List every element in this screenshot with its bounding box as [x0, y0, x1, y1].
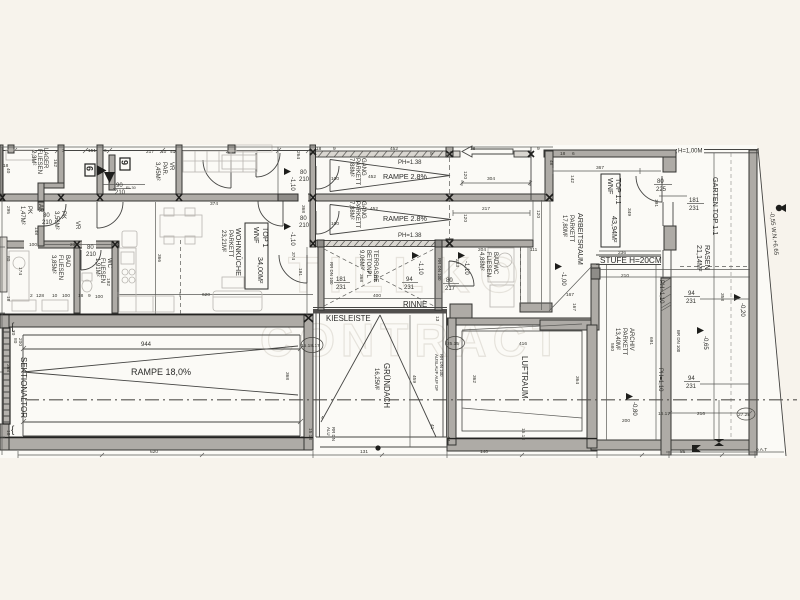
svg-text:-1,10: -1,10 [289, 177, 295, 191]
svg-text:151: 151 [88, 148, 96, 154]
svg-text:100: 100 [62, 293, 70, 299]
svg-text:80: 80 [300, 216, 307, 222]
svg-text:H=1,00M: H=1,00M [678, 149, 703, 155]
svg-text:PAR.: PAR. [161, 162, 167, 176]
svg-text:RR DN 100: RR DN 100 [437, 258, 442, 281]
svg-text:204: 204 [478, 247, 486, 253]
svg-text:3,45M²: 3,45M² [154, 162, 160, 181]
svg-text:225: 225 [656, 187, 667, 193]
svg-text:48: 48 [548, 160, 554, 166]
svg-text:120: 120 [462, 214, 468, 222]
svg-text:100: 100 [29, 242, 37, 248]
svg-text:o A.T: o A.T [756, 447, 767, 453]
svg-text:113: 113 [372, 274, 378, 282]
svg-text:620: 620 [150, 449, 158, 455]
svg-text:BR DN 100: BR DN 100 [676, 330, 681, 353]
svg-text:3,85M²: 3,85M² [50, 255, 56, 274]
svg-text:4,88M²: 4,88M² [478, 252, 484, 271]
svg-text:368: 368 [284, 372, 290, 380]
svg-text:200: 200 [17, 338, 23, 346]
svg-text:44: 44 [445, 436, 451, 442]
svg-text:80: 80 [657, 179, 664, 185]
svg-text:181: 181 [336, 277, 347, 283]
svg-text:STUFE H=20CM: STUFE H=20CM [600, 256, 662, 265]
svg-text:94: 94 [688, 376, 695, 382]
svg-text:364: 364 [574, 376, 580, 384]
svg-text:PH=1,10: PH=1,10 [658, 280, 664, 304]
svg-text:580: 580 [609, 343, 615, 351]
svg-text:80: 80 [43, 213, 50, 219]
svg-text:210: 210 [299, 177, 310, 183]
svg-text:-0,80: -0,80 [631, 402, 637, 416]
svg-text:RR DN 100: RR DN 100 [329, 262, 334, 285]
svg-text:9,06M²: 9,06M² [358, 250, 364, 269]
svg-text:94: 94 [688, 291, 695, 297]
svg-text:41: 41 [429, 424, 435, 430]
svg-text:FLIESEN: FLIESEN [485, 252, 491, 277]
svg-text:16,25M²: 16,25M² [373, 368, 379, 390]
svg-text:1,47M²: 1,47M² [19, 206, 25, 225]
svg-text:PARKETT: PARKETT [227, 230, 233, 258]
svg-text:94: 94 [406, 277, 413, 283]
svg-text:131: 131 [360, 449, 368, 455]
svg-text:RAMPE 18,0%: RAMPE 18,0% [131, 367, 191, 377]
svg-text:FLIESEN: FLIESEN [57, 255, 63, 280]
svg-text:231: 231 [336, 285, 347, 291]
svg-text:80: 80 [446, 278, 453, 284]
svg-text:120: 120 [535, 210, 541, 218]
svg-text:KIESLEISTE: KIESLEISTE [326, 314, 371, 323]
svg-text:100: 100 [95, 294, 103, 300]
svg-text:15.18: 15.18 [520, 428, 526, 440]
svg-text:80: 80 [87, 245, 94, 251]
svg-text:217: 217 [482, 206, 490, 212]
svg-text:25.15: 25.15 [447, 341, 459, 347]
svg-text:6: 6 [572, 151, 575, 157]
svg-text:691: 691 [648, 337, 654, 345]
svg-text:10: 10 [52, 293, 58, 299]
svg-text:23,21M²: 23,21M² [220, 230, 226, 252]
svg-text:216: 216 [697, 411, 705, 417]
svg-text:362: 362 [471, 375, 477, 383]
svg-text:ARCHIV: ARCHIV [628, 328, 634, 351]
svg-text:231: 231 [404, 285, 415, 291]
svg-text:233: 233 [454, 259, 460, 267]
svg-text:2: 2 [30, 293, 33, 299]
svg-text:10: 10 [161, 149, 167, 155]
svg-text:-1,00: -1,00 [560, 272, 566, 286]
svg-text:RAMPE 2.8%: RAMPE 2.8% [383, 214, 428, 223]
svg-text:452: 452 [390, 146, 398, 152]
svg-text:6: 6 [85, 166, 95, 171]
svg-text:WC: WC [106, 258, 112, 269]
svg-text:349: 349 [626, 208, 632, 216]
svg-text:PH=1.38: PH=1.38 [398, 233, 422, 239]
svg-text:620: 620 [202, 292, 210, 298]
svg-text:20: 20 [10, 330, 16, 336]
svg-text:210: 210 [115, 190, 126, 196]
svg-text:AUSLAUF AUF DF: AUSLAUF AUF DF [434, 354, 439, 391]
svg-text:236: 236 [618, 250, 626, 256]
svg-text:210: 210 [86, 252, 97, 258]
svg-text:174: 174 [17, 267, 23, 275]
svg-text:17,80M²: 17,80M² [561, 215, 567, 237]
svg-text:452: 452 [370, 206, 378, 212]
svg-text:-1,10: -1,10 [417, 261, 423, 275]
svg-text:-1,10: -1,10 [463, 261, 469, 275]
svg-text:162: 162 [52, 159, 58, 167]
svg-text:WNF: WNF [606, 178, 615, 195]
svg-text:944: 944 [141, 342, 152, 348]
svg-text:192: 192 [105, 278, 111, 286]
svg-text:18: 18 [78, 293, 84, 299]
svg-text:142: 142 [569, 175, 575, 183]
svg-text:2,3M²: 2,3M² [30, 150, 36, 165]
svg-text:SEKTIONALTOR: SEKTIONALTOR [19, 357, 28, 418]
svg-text:18: 18 [470, 146, 476, 152]
svg-text:15.18.17: 15.18.17 [301, 343, 320, 349]
svg-text:7,88M²: 7,88M² [348, 201, 354, 220]
svg-text:416: 416 [519, 341, 527, 347]
svg-text:13: 13 [434, 316, 440, 322]
svg-text:VR: VR [74, 221, 80, 230]
svg-text:PK: PK [60, 211, 66, 219]
svg-text:PH=1,10: PH=1,10 [657, 368, 663, 392]
svg-text:LUFTRAUM: LUFTRAUM [520, 356, 529, 398]
svg-text:40: 40 [170, 149, 176, 155]
svg-text:18: 18 [5, 430, 11, 436]
svg-text:-0,20: -0,20 [739, 303, 745, 317]
svg-text:7,88M²: 7,88M² [348, 158, 354, 177]
svg-text:304: 304 [487, 176, 495, 182]
svg-text:GRÜNDACH: GRÜNDACH [382, 363, 391, 408]
svg-text:18: 18 [316, 146, 322, 152]
svg-text:PARKETT: PARKETT [568, 215, 574, 243]
svg-text:EL 30: EL 30 [126, 186, 136, 190]
svg-text:264: 264 [295, 151, 301, 159]
svg-text:111: 111 [530, 247, 538, 253]
svg-text:191: 191 [653, 199, 659, 207]
svg-text:374: 374 [290, 252, 296, 260]
svg-text:PARKETT: PARKETT [621, 328, 627, 356]
svg-text:459: 459 [411, 375, 417, 383]
svg-text:358: 358 [719, 293, 725, 301]
svg-text:GARTEN TOP 1.1: GARTEN TOP 1.1 [711, 177, 720, 235]
svg-text:148: 148 [33, 227, 39, 235]
svg-text:295: 295 [5, 206, 11, 214]
svg-text:217: 217 [146, 149, 154, 155]
svg-text:374: 374 [210, 201, 218, 207]
svg-text:100: 100 [331, 221, 339, 227]
svg-text:PK: PK [26, 206, 32, 214]
svg-text:6: 6 [104, 148, 107, 154]
svg-text:231: 231 [686, 384, 697, 390]
svg-text:16.17: 16.17 [658, 411, 670, 417]
svg-text:RAMPE 2.8%: RAMPE 2.8% [383, 172, 428, 181]
svg-text:368: 368 [300, 205, 306, 213]
svg-text:-1,10: -1,10 [289, 232, 295, 246]
svg-text:191: 191 [297, 268, 303, 276]
svg-text:18: 18 [5, 296, 11, 302]
svg-text:3: 3 [62, 148, 65, 154]
svg-text:400: 400 [373, 293, 381, 299]
svg-text:1,91M²: 1,91M² [94, 258, 100, 277]
svg-text:366: 366 [156, 254, 162, 262]
svg-text:15.18: 15.18 [307, 428, 313, 440]
svg-text:ARBEITSRAUM: ARBEITSRAUM [576, 213, 585, 265]
svg-text:9: 9 [333, 146, 336, 152]
svg-text:80: 80 [5, 256, 11, 262]
svg-text:368: 368 [5, 364, 11, 372]
svg-text:86: 86 [680, 449, 686, 455]
svg-text:167: 167 [566, 292, 574, 298]
svg-text:BETONPL: BETONPL [365, 250, 371, 279]
svg-text:210: 210 [621, 273, 629, 279]
svg-text:231: 231 [689, 206, 700, 212]
svg-text:VR: VR [168, 162, 174, 171]
svg-text:4: 4 [321, 415, 324, 421]
svg-text:WOHNKÜCHE: WOHNKÜCHE [234, 228, 243, 276]
svg-text:120: 120 [462, 171, 468, 179]
svg-text:9: 9 [430, 151, 433, 157]
svg-text:167: 167 [571, 303, 577, 311]
svg-text:100: 100 [331, 176, 339, 182]
svg-text:367: 367 [596, 165, 604, 171]
svg-text:34,00M²: 34,00M² [256, 257, 265, 284]
svg-text:-0,65: -0,65 [702, 336, 708, 350]
svg-text:BAD: BAD [64, 255, 70, 268]
svg-text:43,94M²: 43,94M² [610, 216, 619, 243]
svg-text:BADWC: BADWC [492, 252, 498, 275]
svg-text:128: 128 [36, 293, 44, 299]
svg-text:AR: AR [37, 204, 43, 213]
svg-text:18: 18 [3, 163, 9, 169]
svg-text:ALU: ALU [326, 427, 331, 436]
svg-text:WNF: WNF [252, 227, 261, 244]
svg-text:210: 210 [42, 220, 53, 226]
svg-text:200: 200 [622, 418, 630, 424]
svg-text:237: 237 [70, 242, 78, 248]
svg-text:181: 181 [689, 198, 700, 204]
svg-text:RINNE: RINNE [403, 300, 427, 309]
svg-text:80: 80 [300, 170, 307, 176]
svg-text:21,14M²: 21,14M² [695, 245, 704, 272]
svg-text:9: 9 [88, 293, 91, 299]
svg-text:210: 210 [299, 223, 310, 229]
svg-text:9: 9 [120, 160, 130, 165]
svg-text:368: 368 [358, 274, 364, 282]
svg-text:PH=1.38: PH=1.38 [398, 160, 422, 166]
svg-text:18: 18 [560, 151, 566, 157]
svg-text:452: 452 [368, 174, 376, 180]
svg-text:TOP 1: TOP 1 [261, 227, 270, 248]
svg-text:90: 90 [116, 183, 123, 189]
svg-text:231: 231 [686, 299, 697, 305]
svg-text:9: 9 [537, 146, 540, 152]
svg-text:140: 140 [480, 449, 488, 455]
svg-text:217: 217 [445, 286, 456, 292]
svg-text:3,56M²: 3,56M² [53, 211, 59, 230]
